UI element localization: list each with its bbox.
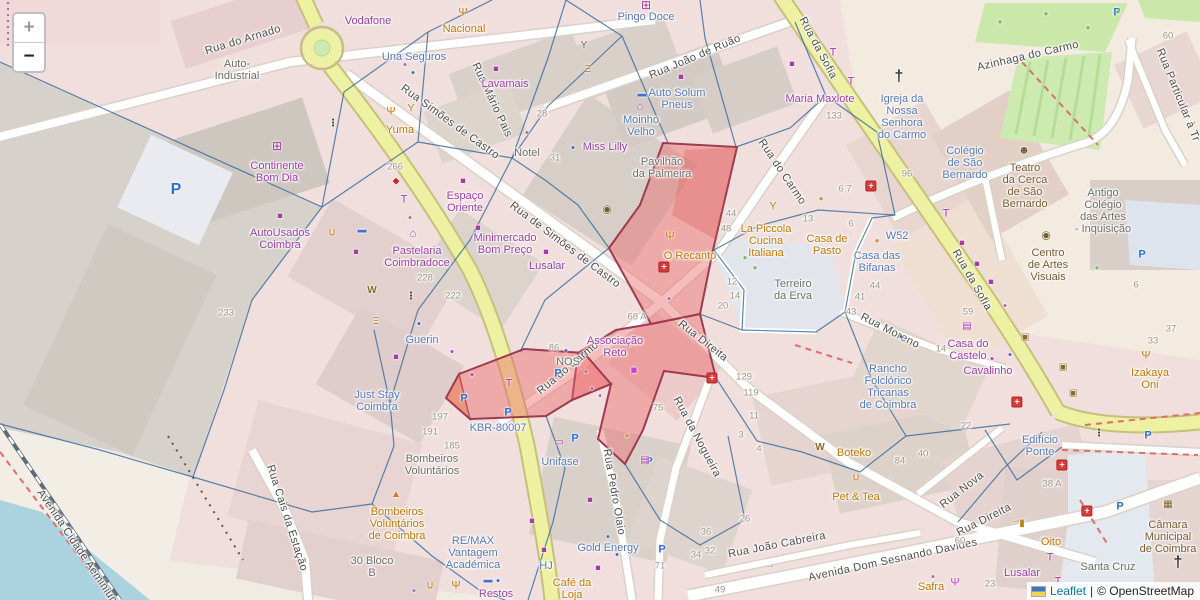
redline-dashed-line — [1062, 450, 1198, 455]
overlay-cell-boundary[interactable] — [512, 36, 622, 158]
overlay-cell-boundary[interactable] — [512, 158, 609, 248]
overlay-cell-boundary[interactable] — [845, 312, 906, 436]
overlay-cell-boundary[interactable] — [193, 477, 372, 512]
overlay-cell-boundary[interactable] — [520, 248, 609, 352]
overlay-cell-boundary[interactable] — [906, 424, 1010, 436]
highlight-polygon-red[interactable] — [446, 349, 611, 419]
overlay-cell-boundary[interactable] — [985, 430, 1062, 480]
overlay-cell-boundary[interactable] — [0, 62, 322, 207]
overlay-cell-boundary[interactable] — [428, 0, 492, 32]
overlay-cell-boundary[interactable] — [528, 416, 565, 600]
overlay-cell-boundary[interactable] — [193, 207, 322, 477]
overlay-cell-boundary[interactable] — [795, 22, 826, 96]
redline-dashed-line — [1085, 413, 1200, 425]
redline-dashed-line — [795, 345, 852, 363]
openstreetmap-link[interactable]: © OpenStreetMap — [1097, 584, 1194, 598]
overlay-cell-boundary[interactable] — [736, 96, 826, 147]
overlay-cell-boundary[interactable] — [625, 464, 745, 545]
overlay-cell-boundary[interactable] — [845, 215, 895, 312]
overlay-cell-boundary[interactable] — [512, 0, 566, 158]
overlay-cell-boundary[interactable] — [826, 96, 895, 215]
overlay-cell-boundary[interactable] — [418, 142, 512, 158]
overlay-cell-boundary[interactable] — [728, 436, 745, 520]
attribution-bar: Leaflet | © OpenStreetMap — [1027, 582, 1200, 600]
geojson-overlay[interactable] — [0, 0, 1200, 600]
zoom-in-button[interactable]: + — [14, 14, 44, 43]
attribution-separator: | — [1090, 584, 1093, 598]
overlay-cell-boundary[interactable] — [742, 312, 845, 332]
zoom-out-button[interactable]: − — [14, 43, 44, 71]
zoom-control: + − — [12, 12, 46, 73]
overlay-cell-boundary[interactable] — [322, 142, 418, 207]
overlay-cell-boundary[interactable] — [418, 32, 428, 142]
dots-dashed-line — [168, 436, 243, 560]
overlay-cell-boundary[interactable] — [566, 0, 622, 36]
redline-dashed-line — [0, 452, 112, 600]
redline-dashed-line — [1022, 62, 1098, 145]
overlay-cell-boundary[interactable] — [716, 378, 906, 472]
leaflet-flag-icon — [1031, 586, 1046, 597]
overlay-cell-boundary[interactable] — [372, 504, 505, 600]
overlay-cell-boundary[interactable] — [958, 432, 1042, 522]
map-canvas[interactable]: Rua do ArnadoRua Mário PaisRua João de R… — [0, 0, 1200, 600]
overlay-cell-boundary[interactable] — [372, 330, 394, 504]
redline-dashed-line — [1080, 500, 1108, 545]
leaflet-link[interactable]: Leaflet — [1050, 584, 1086, 598]
overlay-cell-boundary[interactable] — [322, 32, 428, 207]
overlay-cell-boundary[interactable] — [622, 36, 668, 143]
overlay-cell-boundary[interactable] — [714, 210, 895, 250]
overlay-cell-boundary[interactable] — [700, 0, 736, 147]
